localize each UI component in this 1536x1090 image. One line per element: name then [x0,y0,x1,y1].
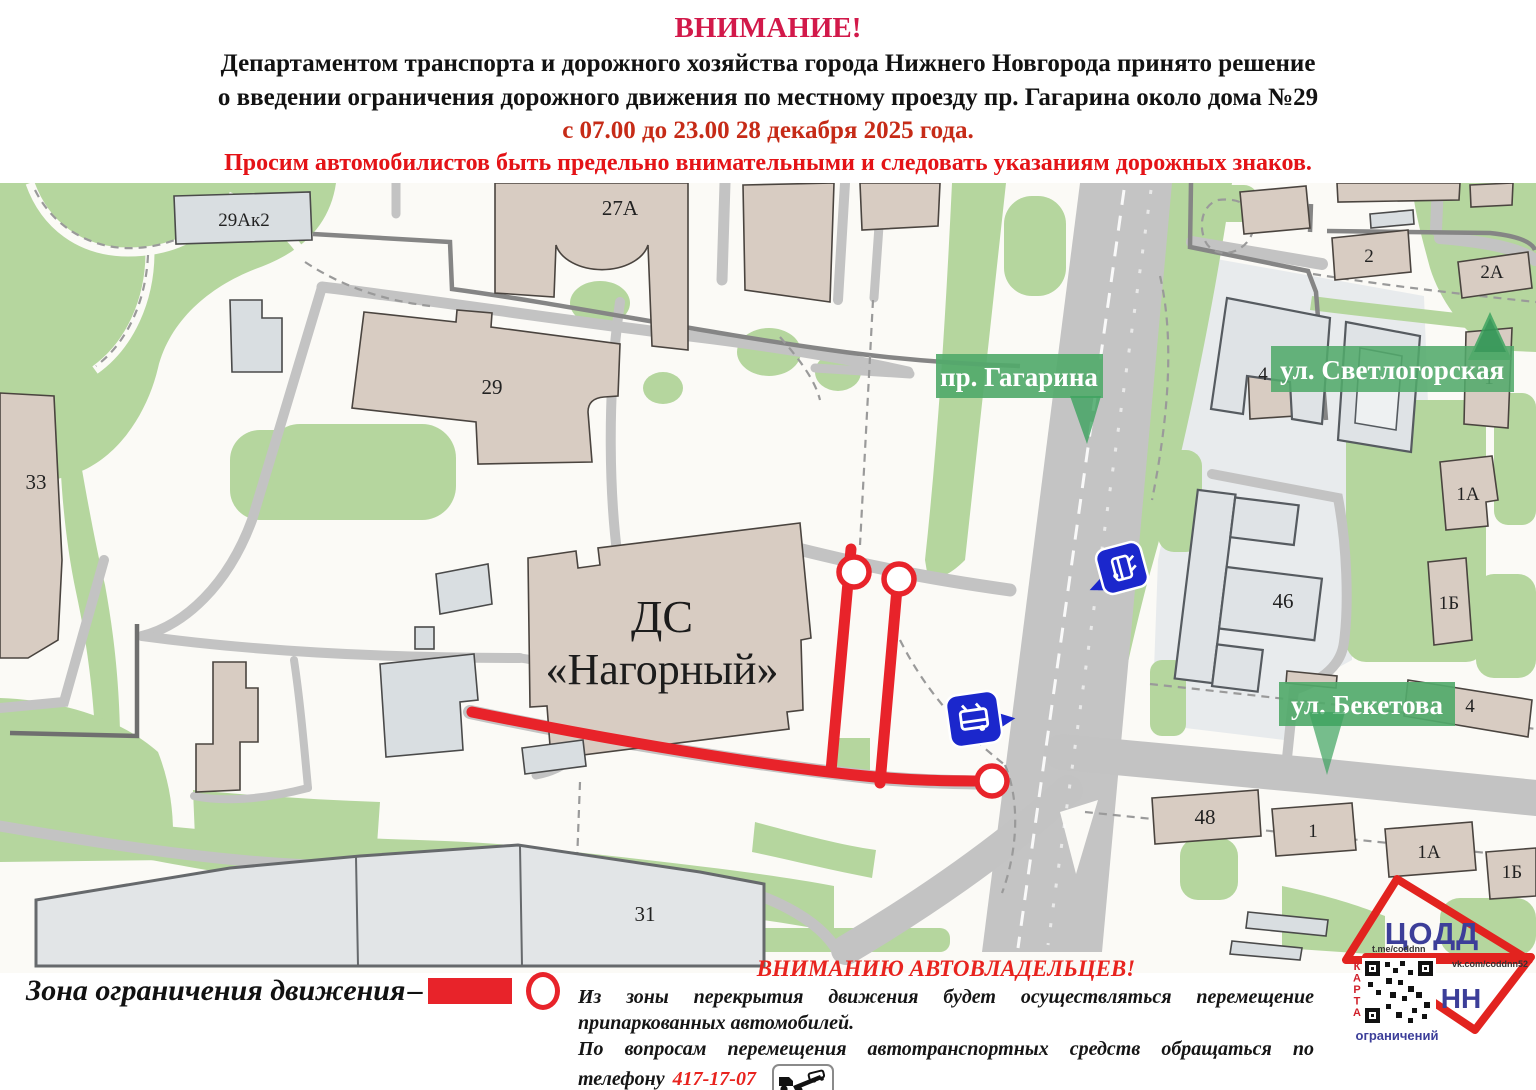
svg-text:2: 2 [1364,246,1374,267]
svg-text:ДС: ДС [631,591,693,642]
svg-text:29: 29 [482,375,503,399]
svg-text:1Б: 1Б [1439,593,1459,614]
logo-telegram: t.me/coddnn [1372,944,1426,954]
qr-caption: ограничений [1356,1028,1439,1043]
header-warning: Просим автомобилистов быть предельно вни… [0,150,1536,177]
svg-text:1А: 1А [1417,842,1441,863]
logo-city: НН [1441,983,1481,1014]
svg-text:46: 46 [1273,589,1294,613]
restriction-endpoint-sample [526,972,560,1010]
svg-text:ул. Светлогорская: ул. Светлогорская [1280,355,1504,385]
svg-text:4: 4 [1465,696,1475,717]
closure-dates: с 07.00 до 23.00 28 декабря 2025 года. [0,117,1536,145]
phone-prefix: телефону [578,1066,665,1090]
zone-endpoint-2 [884,564,914,594]
svg-text:31: 31 [635,902,656,926]
svg-text:1А: 1А [1456,484,1480,505]
road-closure-poster: ВНИМАНИЕ! Департаментом транспорта и дор… [0,0,1536,1090]
qr-vertical-label: КАРТА [1353,961,1361,1019]
svg-text:«Нагорный»: «Нагорный» [546,645,779,694]
notice-title: ВНИМАНИЮ АВТОВЛАДЕЛЬЦЕВ! [578,956,1314,982]
owners-notice: ВНИМАНИЮ АВТОВЛАДЕЛЬЦЕВ! Из зоны перекры… [578,956,1314,1090]
svg-text:29Ак2: 29Ак2 [218,210,269,231]
header-line-3: о введении ограничения дорожного движени… [0,84,1536,112]
zone-endpoint-1 [839,557,869,587]
codd-logo: ЦОДД НН t.me/coddnn vk.com/coddnn52 КАРТ… [1325,868,1536,1090]
notice-line-2: припаркованных автомобилей. [578,1010,1314,1036]
city-map: 29Ак2 27А 29 33 2 2А 4 1 1А 1Б 46 4 48 1… [0,183,1536,973]
notice-line-1: Из зоны перекрытия движения будет осущес… [578,984,1314,1010]
logo-vk: vk.com/coddnn52 [1452,959,1528,969]
tow-truck-icon [772,1064,834,1090]
legend-label: Зона ограничения движения [26,974,405,1008]
qr-code [1362,958,1436,1026]
svg-text:4: 4 [1258,364,1268,385]
legend-dash: – [407,974,422,1008]
poster-title: ВНИМАНИЕ! [0,12,1536,45]
svg-text:27А: 27А [602,196,639,220]
svg-text:2А: 2А [1480,262,1504,283]
svg-text:1: 1 [1308,821,1318,842]
zone-endpoint-3 [977,766,1007,796]
header-line-2: Департаментом транспорта и дорожного хоз… [0,50,1536,78]
restriction-line-sample [428,978,512,1004]
notice-phone-row: телефону 417-17-07 [578,1062,1314,1090]
svg-text:48: 48 [1195,805,1216,829]
phone-number: 417-17-07 [673,1066,756,1090]
notice-line-3: По вопросам перемещения автотранспортных… [578,1036,1314,1062]
svg-text:пр. Гагарина: пр. Гагарина [940,362,1098,392]
legend: Зона ограничения движения – [26,972,560,1010]
svg-text:33: 33 [26,470,47,494]
